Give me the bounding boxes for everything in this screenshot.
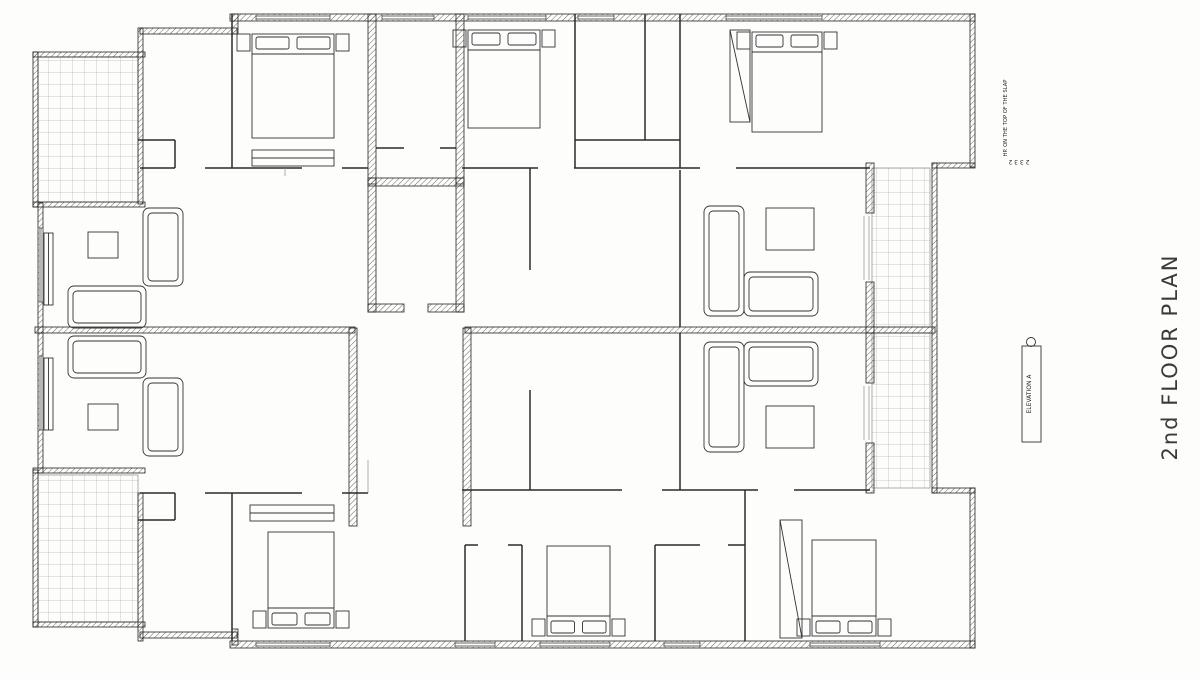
- wall: [33, 622, 145, 627]
- nightstand: [532, 619, 545, 636]
- bed-pillow: [848, 621, 872, 633]
- elevation-marker-tail: [1027, 338, 1036, 347]
- nightstand: [737, 32, 750, 49]
- slab-dimension: 2 3 3 2: [1008, 158, 1029, 165]
- sofa-seat: [709, 211, 739, 311]
- wall: [33, 470, 38, 627]
- wall: [970, 488, 975, 648]
- coffee-table: [766, 406, 814, 448]
- closet-diagonal: [780, 520, 802, 638]
- wall: [866, 443, 874, 493]
- wall: [140, 28, 237, 34]
- sofa-seat: [73, 291, 141, 323]
- veranda-tiles: [872, 168, 930, 327]
- sofa-seat: [749, 277, 813, 311]
- wall: [368, 304, 404, 312]
- wall: [368, 178, 376, 312]
- coffee-table: [766, 208, 814, 250]
- plan-title: 2nd FLOOR PLAN: [1158, 254, 1182, 461]
- sofa: [143, 208, 183, 286]
- wall: [33, 52, 145, 57]
- veranda-tiles: [872, 333, 930, 488]
- wall: [368, 178, 464, 186]
- bed-pillow: [472, 33, 500, 45]
- nightstand: [612, 619, 625, 636]
- bed: [547, 546, 610, 636]
- nightstand: [336, 611, 349, 628]
- wall: [932, 163, 937, 493]
- bed-pillow: [791, 35, 818, 47]
- coffee-table: [88, 232, 118, 258]
- bed-pillow: [508, 33, 536, 45]
- veranda-tiles: [38, 57, 138, 202]
- window: [39, 356, 43, 430]
- sofa: [68, 336, 146, 378]
- closet-diagonal: [730, 30, 750, 122]
- wall: [349, 328, 357, 526]
- floor-plan-drawing: 2nd FLOOR PLAN ELEVATION A HP. ON THE TO…: [0, 0, 1200, 679]
- wall: [932, 488, 975, 493]
- nightstand: [237, 34, 250, 51]
- wall: [138, 493, 143, 641]
- sofa-seat: [749, 347, 813, 381]
- nightstand: [824, 32, 837, 49]
- bed: [252, 34, 334, 138]
- wall: [866, 163, 874, 213]
- bed-pillow: [816, 621, 840, 633]
- sofa: [68, 286, 146, 328]
- slab-annotation: HP. ON THE TOP OF THE SLAP: [1003, 80, 1009, 157]
- wall: [465, 327, 935, 333]
- sofa-seat: [148, 383, 178, 451]
- sofa: [744, 342, 818, 386]
- window: [39, 228, 43, 302]
- nightstand: [336, 34, 349, 51]
- wall: [33, 468, 145, 473]
- wall: [456, 178, 464, 312]
- nightstand: [253, 611, 266, 628]
- bed-pillow: [297, 37, 330, 49]
- floor-plan-sheet: 2nd FLOOR PLAN ELEVATION A HP. ON THE TO…: [0, 0, 1200, 679]
- bed-pillow: [551, 621, 575, 633]
- wall: [33, 52, 38, 207]
- wall: [456, 14, 464, 184]
- sofa-seat: [148, 213, 178, 281]
- coffee-table: [88, 404, 118, 430]
- sofa: [704, 342, 744, 452]
- sofa-seat: [709, 347, 739, 447]
- bed-pillow: [272, 613, 297, 625]
- bed-pillow: [305, 613, 330, 625]
- wall: [368, 14, 376, 184]
- wall: [138, 28, 143, 204]
- sofa: [704, 206, 744, 316]
- wall: [463, 328, 471, 526]
- bed-pillow: [256, 37, 289, 49]
- veranda-tiles: [38, 475, 138, 622]
- sofa: [143, 378, 183, 456]
- bed: [268, 532, 334, 628]
- wall: [932, 163, 975, 168]
- elevation-marker: ELEVATION A: [1022, 338, 1041, 443]
- wall: [33, 202, 145, 207]
- wall: [866, 282, 874, 333]
- wall: [970, 14, 975, 167]
- bed: [812, 540, 876, 636]
- sofa-seat: [73, 341, 141, 373]
- bed-pillow: [756, 35, 783, 47]
- sofa: [744, 272, 818, 316]
- wall: [428, 304, 464, 312]
- wall: [140, 632, 237, 638]
- nightstand: [542, 30, 555, 47]
- nightstand: [878, 619, 891, 636]
- wall: [866, 333, 874, 383]
- bed-pillow: [583, 621, 607, 633]
- elevation-marker-label: ELEVATION A: [1026, 374, 1033, 414]
